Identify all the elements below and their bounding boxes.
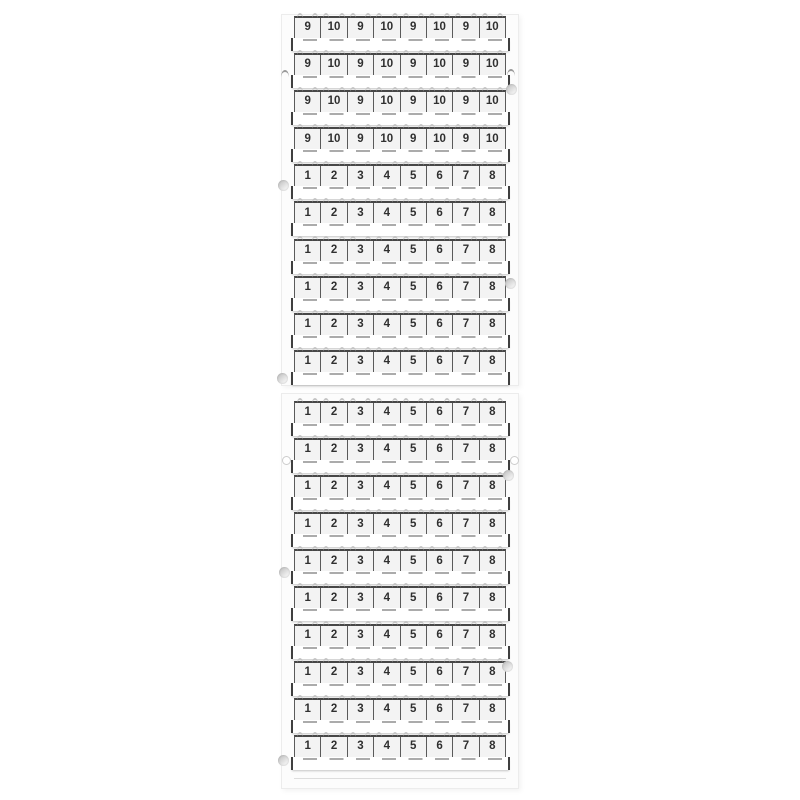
marker-cell: 5: [401, 315, 427, 335]
marker-cell: 1: [295, 203, 321, 223]
marker-row-gap: [291, 261, 510, 274]
marker-card-top: 9109109109109109109109109109109109109109…: [281, 14, 519, 386]
marker-cell: 3: [348, 203, 374, 223]
marker-cell: 4: [374, 737, 400, 757]
marker-cell: 8: [480, 241, 505, 261]
marker-cell: 9: [348, 55, 374, 75]
marker-cell: 8: [480, 352, 505, 372]
marker-cell: 2: [321, 440, 347, 460]
marker-row: 12345678: [282, 698, 518, 735]
mold-mark-blob: [502, 661, 513, 672]
marker-cell: 8: [480, 551, 505, 571]
marker-cell: 6: [427, 700, 453, 720]
marker-row: 910910910910: [282, 127, 518, 164]
marker-strip: 910910910910: [294, 16, 506, 38]
marker-cell: 2: [321, 737, 347, 757]
marker-row-gap: [291, 497, 510, 510]
marker-strip: 12345678: [294, 401, 506, 423]
marker-cell: 4: [374, 700, 400, 720]
marker-cell: 5: [401, 588, 427, 608]
marker-strip: 12345678: [294, 698, 506, 720]
marker-cell: 6: [427, 477, 453, 497]
marker-cell: 9: [401, 55, 427, 75]
marker-cell: 3: [348, 403, 374, 423]
mold-mark-blob: [278, 755, 289, 766]
marker-cell: 3: [348, 278, 374, 298]
marker-cell: 10: [374, 18, 400, 38]
marker-cell: 7: [453, 514, 479, 534]
marker-cell: 6: [427, 241, 453, 261]
marker-row-gap: [291, 112, 510, 125]
marker-cell: 2: [321, 166, 347, 186]
marker-cell: 9: [295, 129, 321, 149]
mold-mark-ring: [510, 456, 519, 465]
marker-cell: 5: [401, 241, 427, 261]
marker-row: 12345678: [282, 586, 518, 623]
marker-cell: 2: [321, 315, 347, 335]
marker-cell: 2: [321, 626, 347, 646]
marker-row-gap: [291, 372, 510, 385]
marker-cell: 6: [427, 166, 453, 186]
marker-row: 12345678: [282, 164, 518, 201]
marker-row-gap: [291, 460, 510, 473]
marker-row: 12345678: [282, 239, 518, 276]
marker-cell: 1: [295, 551, 321, 571]
mold-mark-blob: [277, 373, 288, 384]
marker-cell: 6: [427, 588, 453, 608]
marker-cell: 9: [401, 18, 427, 38]
marker-cell: 2: [321, 203, 347, 223]
mold-mark-blob: [279, 567, 290, 578]
marker-cell: 5: [401, 440, 427, 460]
marker-row: 910910910910: [282, 90, 518, 127]
marker-cell: 5: [401, 700, 427, 720]
marker-strip: 12345678: [294, 475, 506, 497]
marker-strip: 12345678: [294, 661, 506, 683]
marker-cell: 3: [348, 514, 374, 534]
marker-cell: 3: [348, 477, 374, 497]
marker-cell: 10: [480, 18, 505, 38]
marker-cell: 7: [453, 440, 479, 460]
marker-row-gap: [291, 335, 510, 348]
marker-cell: 1: [295, 352, 321, 372]
marker-cell: 7: [453, 278, 479, 298]
marker-cell: 4: [374, 514, 400, 534]
marker-cell: 1: [295, 477, 321, 497]
marker-cell: 8: [480, 315, 505, 335]
marker-cell: 2: [321, 551, 347, 571]
marker-cell: 7: [453, 626, 479, 646]
marker-strip: 12345678: [294, 276, 506, 298]
marker-row-gap: [291, 149, 510, 162]
marker-cell: 7: [453, 477, 479, 497]
marker-cell: 4: [374, 588, 400, 608]
marker-cell: 4: [374, 477, 400, 497]
marker-cell: 1: [295, 663, 321, 683]
marker-row: 12345678: [282, 549, 518, 586]
marker-cell: 3: [348, 352, 374, 372]
marker-cell: 5: [401, 278, 427, 298]
marker-cell: 9: [453, 55, 479, 75]
marker-cell: 3: [348, 440, 374, 460]
mold-mark-blob: [503, 470, 514, 481]
marker-cell: 9: [453, 129, 479, 149]
marker-cell: 9: [401, 129, 427, 149]
mold-mark-blob: [505, 278, 516, 289]
marker-cell: 1: [295, 278, 321, 298]
marker-cell: 9: [295, 55, 321, 75]
marker-cell: 6: [427, 403, 453, 423]
mold-mark-blob: [506, 84, 517, 95]
marker-cell: 9: [295, 92, 321, 112]
marker-cell: 10: [427, 92, 453, 112]
marker-cell: 1: [295, 514, 321, 534]
marker-row: 12345678: [282, 201, 518, 238]
marker-row: 12345678: [282, 313, 518, 350]
marker-cell: 7: [453, 588, 479, 608]
marker-cell: 4: [374, 278, 400, 298]
marker-cell: 6: [427, 626, 453, 646]
marker-cell: 10: [427, 55, 453, 75]
terminal-marker-card-photo: 9109109109109109109109109109109109109109…: [0, 0, 800, 800]
marker-cell: 8: [480, 514, 505, 534]
marker-cell: 8: [480, 588, 505, 608]
marker-cell: 1: [295, 440, 321, 460]
marker-cell: 7: [453, 700, 479, 720]
marker-cell: 3: [348, 588, 374, 608]
marker-row-gap: [291, 298, 510, 311]
marker-cell: 6: [427, 514, 453, 534]
marker-cell: 4: [374, 551, 400, 571]
marker-row: 12345678: [282, 401, 518, 438]
marker-row-gap: [291, 757, 510, 770]
marker-cell: 4: [374, 403, 400, 423]
marker-cell: 5: [401, 737, 427, 757]
marker-row-gap: [291, 38, 510, 51]
marker-cell: 2: [321, 514, 347, 534]
marker-strip: 12345678: [294, 586, 506, 608]
marker-cell: 3: [348, 663, 374, 683]
marker-cell: 4: [374, 352, 400, 372]
marker-row: 12345678: [282, 276, 518, 313]
marker-strip: 12345678: [294, 239, 506, 261]
marker-cell: 10: [321, 92, 347, 112]
marker-cell: 5: [401, 403, 427, 423]
marker-cell: 1: [295, 588, 321, 608]
marker-row-gap: [291, 186, 510, 199]
marker-cell: 8: [480, 278, 505, 298]
marker-row-gap: [291, 423, 510, 436]
marker-strip: 12345678: [294, 313, 506, 335]
marker-cell: 9: [295, 18, 321, 38]
marker-cell: 1: [295, 241, 321, 261]
marker-cell: 6: [427, 551, 453, 571]
marker-cell: 1: [295, 315, 321, 335]
marker-cell: 2: [321, 403, 347, 423]
marker-strip: 12345678: [294, 549, 506, 571]
marker-cell: 6: [427, 352, 453, 372]
marker-cell: 6: [427, 315, 453, 335]
marker-cell: 2: [321, 700, 347, 720]
marker-cell: 6: [427, 663, 453, 683]
marker-cell: 10: [321, 55, 347, 75]
marker-strip: 12345678: [294, 350, 506, 372]
marker-cell: 10: [480, 55, 505, 75]
marker-cell: 5: [401, 663, 427, 683]
marker-cell: 7: [453, 315, 479, 335]
marker-row: 12345678: [282, 350, 518, 387]
marker-cell: 9: [348, 92, 374, 112]
marker-row-gap: [291, 223, 510, 236]
marker-cell: 1: [295, 626, 321, 646]
marker-cell: 2: [321, 352, 347, 372]
marker-cell: 8: [480, 700, 505, 720]
marker-card-bottom: 1234567812345678123456781234567812345678…: [281, 393, 519, 789]
marker-cell: 3: [348, 315, 374, 335]
marker-row-gap: [291, 571, 510, 584]
marker-strip: 12345678: [294, 512, 506, 534]
marker-cell: 7: [453, 551, 479, 571]
marker-cell: 8: [480, 203, 505, 223]
marker-row-gap: [291, 720, 510, 733]
marker-cell: 10: [374, 55, 400, 75]
marker-cell: 3: [348, 700, 374, 720]
marker-cell: 10: [374, 129, 400, 149]
marker-cell: 7: [453, 166, 479, 186]
marker-cell: 7: [453, 663, 479, 683]
marker-cell: 4: [374, 241, 400, 261]
marker-cell: 10: [321, 129, 347, 149]
marker-cell: 2: [321, 663, 347, 683]
marker-cell: 10: [321, 18, 347, 38]
marker-cell: 6: [427, 278, 453, 298]
mold-mark-ring: [282, 456, 291, 465]
marker-cell: 2: [321, 588, 347, 608]
marker-cell: 3: [348, 626, 374, 646]
marker-cell: 5: [401, 514, 427, 534]
marker-row-gap: [291, 75, 510, 88]
marker-strip: 12345678: [294, 438, 506, 460]
marker-cell: 5: [401, 477, 427, 497]
marker-strip: 12345678: [294, 624, 506, 646]
marker-cell: 10: [480, 92, 505, 112]
marker-cell: 8: [480, 166, 505, 186]
marker-cell: 7: [453, 403, 479, 423]
mold-mark-arc: [281, 70, 289, 77]
marker-strip: 12345678: [294, 164, 506, 186]
marker-cell: 6: [427, 203, 453, 223]
marker-cell: 4: [374, 166, 400, 186]
marker-cell: 1: [295, 737, 321, 757]
marker-cell: 7: [453, 203, 479, 223]
marker-cell: 4: [374, 315, 400, 335]
marker-cell: 4: [374, 626, 400, 646]
marker-cell: 4: [374, 203, 400, 223]
marker-row: 12345678: [282, 512, 518, 549]
marker-row-gap: [291, 534, 510, 547]
marker-strip: 910910910910: [294, 53, 506, 75]
marker-cell: 1: [295, 166, 321, 186]
marker-cell: 6: [427, 440, 453, 460]
mold-mark-arc: [507, 69, 515, 76]
marker-cell: 7: [453, 241, 479, 261]
marker-row: 12345678: [282, 624, 518, 661]
marker-strip: 910910910910: [294, 127, 506, 149]
marker-cell: 3: [348, 241, 374, 261]
marker-cell: 7: [453, 352, 479, 372]
marker-cell: 1: [295, 403, 321, 423]
marker-strip: 910910910910: [294, 90, 506, 112]
marker-cell: 10: [427, 129, 453, 149]
marker-cell: 10: [427, 18, 453, 38]
marker-cell: 2: [321, 477, 347, 497]
marker-row-gap: [291, 646, 510, 659]
marker-cell: 7: [453, 737, 479, 757]
marker-row: 12345678: [282, 475, 518, 512]
marker-cell: 1: [295, 700, 321, 720]
marker-cell: 4: [374, 440, 400, 460]
marker-cell: 2: [321, 278, 347, 298]
marker-cell: 8: [480, 440, 505, 460]
marker-cell: 6: [427, 737, 453, 757]
marker-row: 12345678: [282, 735, 518, 772]
marker-cell: 5: [401, 352, 427, 372]
marker-cell: 9: [453, 18, 479, 38]
marker-row-gap: [291, 608, 510, 621]
marker-cell: 8: [480, 403, 505, 423]
marker-cell: 9: [453, 92, 479, 112]
marker-cell: 3: [348, 166, 374, 186]
marker-cell: 8: [480, 477, 505, 497]
marker-cell: 10: [374, 92, 400, 112]
marker-cell: 5: [401, 551, 427, 571]
marker-row: 12345678: [282, 661, 518, 698]
marker-strip: 12345678: [294, 201, 506, 223]
mold-mark-blob: [278, 180, 289, 191]
marker-cell: 2: [321, 241, 347, 261]
marker-cell: 10: [480, 129, 505, 149]
marker-cell: 5: [401, 166, 427, 186]
marker-row: 910910910910: [282, 16, 518, 53]
marker-cell: 4: [374, 663, 400, 683]
marker-strip: 12345678: [294, 735, 506, 757]
marker-cell: 9: [348, 129, 374, 149]
marker-row: 12345678: [282, 438, 518, 475]
marker-cell: 9: [348, 18, 374, 38]
marker-cell: 8: [480, 626, 505, 646]
marker-cell: 3: [348, 737, 374, 757]
marker-cell: 5: [401, 203, 427, 223]
marker-cell: 5: [401, 626, 427, 646]
marker-cell: 9: [401, 92, 427, 112]
marker-row-gap: [291, 683, 510, 696]
marker-cell: 3: [348, 551, 374, 571]
marker-row: 910910910910: [282, 53, 518, 90]
marker-cell: 8: [480, 737, 505, 757]
